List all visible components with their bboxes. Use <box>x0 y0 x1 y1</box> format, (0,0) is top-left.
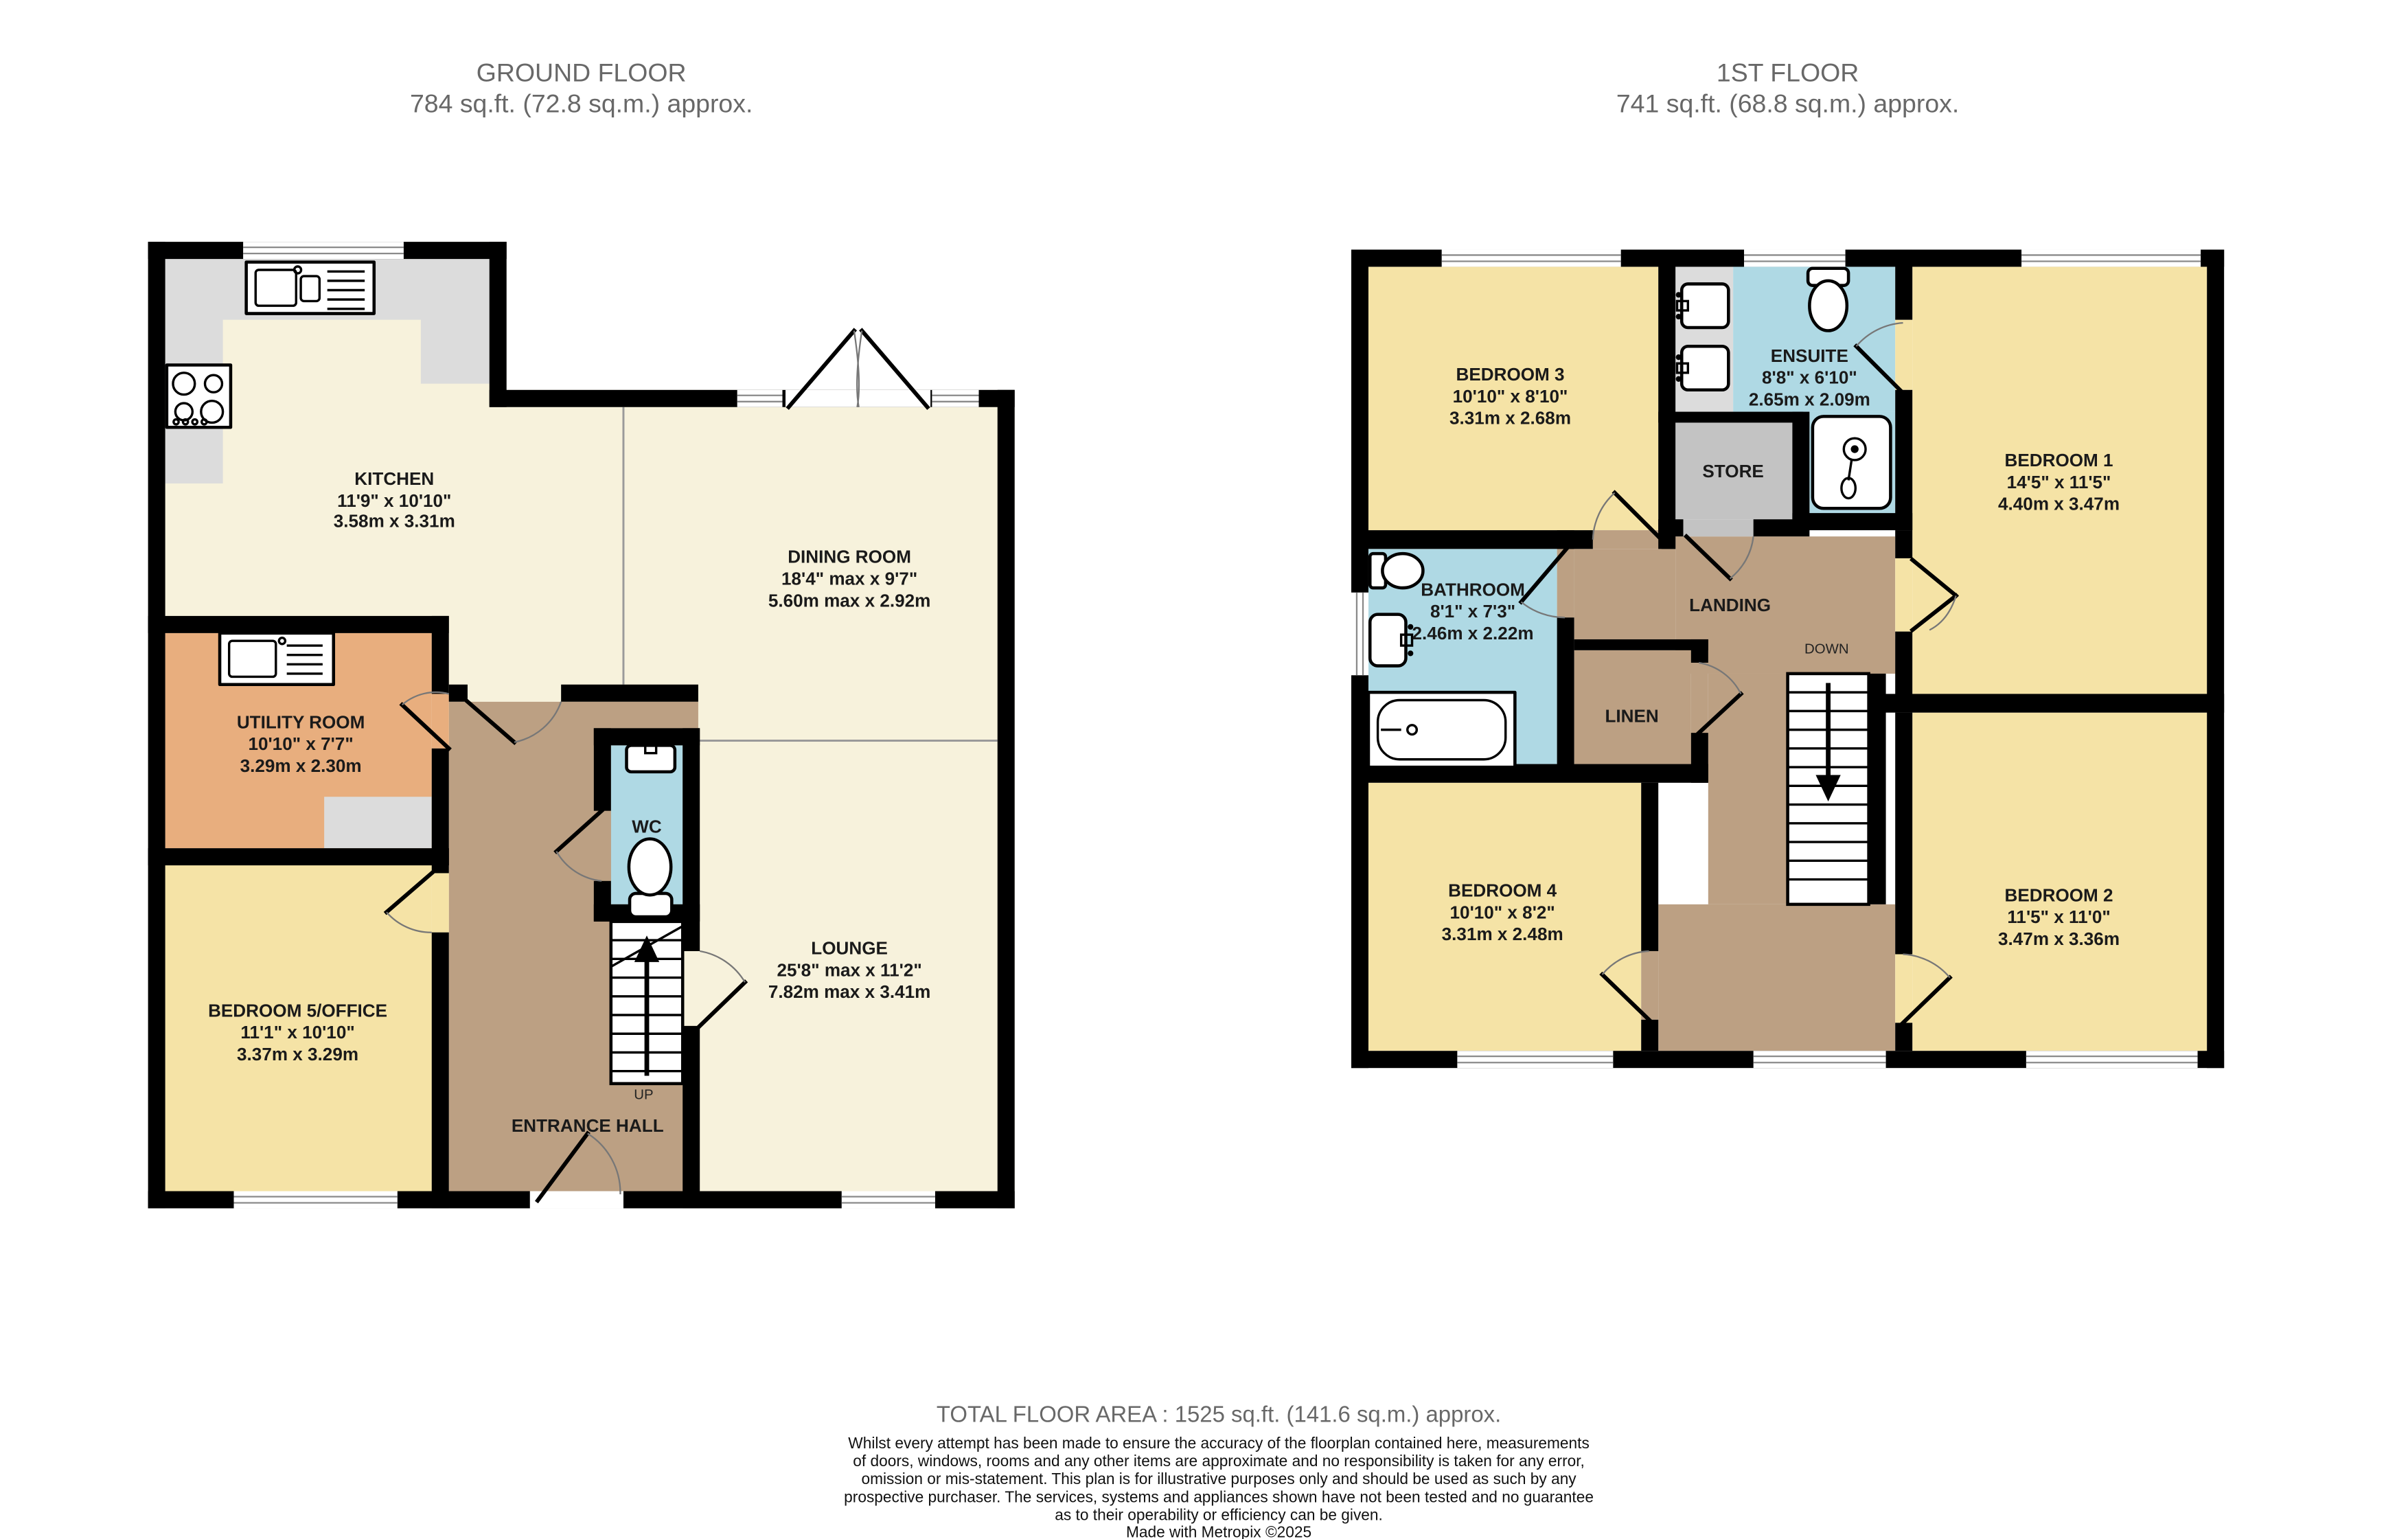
bedroom3-label: BEDROOM 3 <box>1456 364 1565 385</box>
landing-label: LANDING <box>1689 595 1771 615</box>
made-with-metropix: Made with Metropix ©2025 <box>1126 1523 1311 1539</box>
utility-sink <box>220 633 334 685</box>
bedroom4-dims-metric: 3.31m x 2.48m <box>1442 924 1563 944</box>
store-label: STORE <box>1702 461 1763 481</box>
kitchen-counter-right <box>421 259 490 384</box>
bathtub <box>1368 692 1515 767</box>
utility-label: UTILITY ROOM <box>237 711 365 732</box>
bedroom3-dims-imperial: 10'10" x 8'10" <box>1453 386 1568 407</box>
bedroom1-dims-metric: 4.40m x 3.47m <box>1998 494 2120 514</box>
linen-label: LINEN <box>1605 705 1658 726</box>
lounge-dims-imperial: 25'8" max x 11'2" <box>777 959 921 980</box>
lounge-label: LOUNGE <box>811 937 888 958</box>
first-floor-plan: BEDROOM 3 10'10" x 8'10" 3.31m x 2.68m E… <box>1351 249 2224 1068</box>
ensuite-toilet <box>1808 269 1848 331</box>
ensuite-dims-imperial: 8'8" x 6'10" <box>1762 367 1857 388</box>
french-doors <box>786 331 930 407</box>
floorplan: GROUND FLOOR 784 sq.ft. (72.8 sq.m.) app… <box>0 0 2408 1539</box>
bedroom4-label: BEDROOM 4 <box>1448 880 1557 900</box>
disclaimer-line-1: Whilst every attempt has been made to en… <box>848 1434 1590 1452</box>
bedroom5-label: BEDROOM 5/OFFICE <box>208 1000 387 1021</box>
disclaimer-line-2: of doors, windows, rooms and any other i… <box>853 1452 1585 1470</box>
utility-dims-imperial: 10'10" x 7'7" <box>248 733 353 754</box>
ensuite-dims-metric: 2.65m x 2.09m <box>1749 389 1870 409</box>
entrance-hall-label: ENTRANCE HALL <box>512 1115 664 1136</box>
bedroom2-label: BEDROOM 2 <box>2005 885 2113 905</box>
disclaimer-line-3: omission or mis-statement. This plan is … <box>861 1470 1576 1487</box>
bathroom-sink <box>1370 615 1413 666</box>
first-floor-area: 741 sq.ft. (68.8 sq.m.) approx. <box>1616 89 1959 118</box>
bedroom1-dims-imperial: 14'5" x 11'5" <box>2007 472 2111 492</box>
bedroom2-dims-metric: 3.47m x 3.36m <box>1998 928 2120 949</box>
utility-counter <box>324 797 432 848</box>
bathroom-dims-metric: 2.46m x 2.22m <box>1412 623 1534 643</box>
bedroom1-label: BEDROOM 1 <box>2005 450 2113 470</box>
kitchen-dims-metric: 3.58m x 3.31m <box>334 511 455 532</box>
first-floor-title: 1ST FLOOR <box>1717 58 1859 87</box>
first-staircase <box>1788 674 1869 904</box>
wc-toilet <box>629 839 672 917</box>
down-label: DOWN <box>1804 641 1849 657</box>
bathroom-dims-imperial: 8'1" x 7'3" <box>1430 601 1515 622</box>
bathroom-toilet <box>1370 554 1423 588</box>
dining-dims-metric: 5.60m max x 2.92m <box>768 590 930 611</box>
kitchen-sink <box>246 262 374 314</box>
bathroom-label: BATHROOM <box>1421 579 1525 600</box>
bedroom4-dims-imperial: 10'10" x 8'2" <box>1450 902 1555 922</box>
ground-floor-plan: KITCHEN 11'9" x 10'10" 3.58m x 3.31m DIN… <box>148 242 1015 1208</box>
bedroom5-dims-imperial: 11'1" x 10'10" <box>240 1022 354 1042</box>
wc-label: WC <box>632 816 662 836</box>
ensuite-sink-2 <box>1676 346 1729 390</box>
ground-staircase <box>611 922 683 1084</box>
bedroom5-dims-metric: 3.37m x 3.29m <box>237 1044 358 1064</box>
total-floor-area: TOTAL FLOOR AREA : 1525 sq.ft. (141.6 sq… <box>937 1401 1501 1426</box>
disclaimer-line-4: prospective purchaser. The services, sys… <box>844 1487 1594 1505</box>
wc-sink <box>627 739 675 772</box>
ground-floor-area: 784 sq.ft. (72.8 sq.m.) approx. <box>410 89 753 118</box>
dining-dims-imperial: 18'4" max x 9'7" <box>781 569 917 589</box>
dining-label: DINING ROOM <box>788 547 911 567</box>
disclaimer-line-5: as to their operability or efficiency ca… <box>1055 1505 1383 1523</box>
ground-floor-title: GROUND FLOOR <box>477 58 687 87</box>
kitchen-dims-imperial: 11'9" x 10'10" <box>337 490 451 511</box>
bedroom2-room <box>1912 713 2207 1051</box>
bedroom3-dims-metric: 3.31m x 2.68m <box>1449 408 1571 429</box>
ensuite-shower <box>1813 416 1890 508</box>
footer: TOTAL FLOOR AREA : 1525 sq.ft. (141.6 sq… <box>844 1401 1594 1539</box>
kitchen-hob <box>167 365 231 427</box>
kitchen-label: KITCHEN <box>354 468 434 489</box>
lounge-dims-metric: 7.82m max x 3.41m <box>768 981 930 1002</box>
utility-dims-metric: 3.29m x 2.30m <box>240 755 362 776</box>
bedroom2-dims-imperial: 11'5" x 11'0" <box>2007 907 2110 927</box>
ensuite-sink-1 <box>1676 284 1729 328</box>
ensuite-label: ENSUITE <box>1771 345 1848 366</box>
up-label: UP <box>634 1088 653 1103</box>
